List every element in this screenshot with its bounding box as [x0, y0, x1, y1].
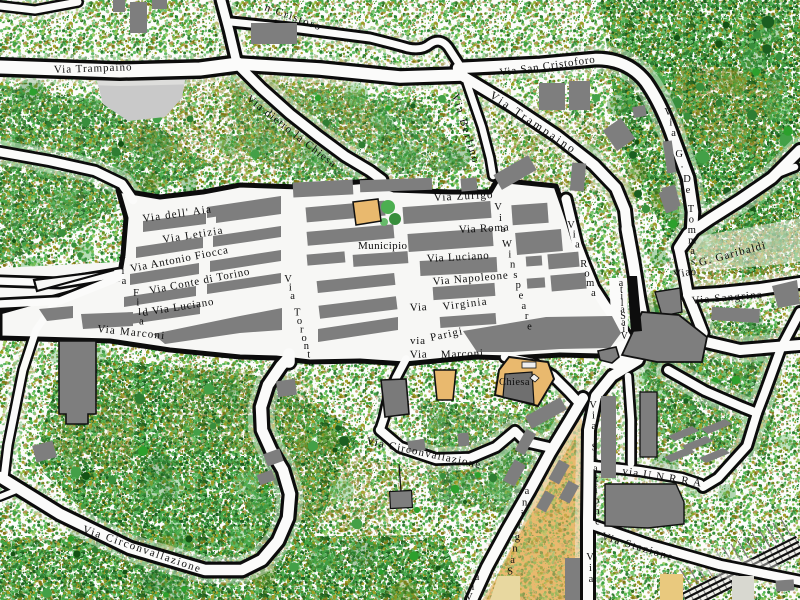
- svg-text:e: e: [686, 185, 691, 196]
- svg-text:a: a: [501, 224, 506, 235]
- svg-text:o: o: [308, 358, 313, 369]
- svg-text:i: i: [669, 118, 672, 129]
- svg-text:s: s: [691, 257, 695, 268]
- svg-text:i: i: [521, 509, 524, 520]
- svg-text:V: V: [465, 592, 473, 600]
- svg-text:a: a: [591, 421, 596, 432]
- svg-text:t: t: [594, 453, 597, 464]
- svg-text:n: n: [522, 498, 528, 509]
- svg-text:a: a: [290, 291, 295, 302]
- svg-text:a: a: [589, 574, 594, 585]
- svg-text:a: a: [510, 555, 515, 566]
- svg-text:r: r: [518, 521, 522, 532]
- svg-text:S: S: [592, 442, 598, 453]
- svg-text:z: z: [593, 474, 598, 485]
- svg-text:Municipio: Municipio: [358, 240, 408, 252]
- svg-text:m: m: [688, 225, 696, 236]
- svg-text:via: via: [410, 335, 426, 347]
- svg-text:a: a: [593, 464, 598, 475]
- svg-text:a: a: [525, 486, 530, 497]
- svg-text:V: V: [586, 552, 594, 563]
- svg-text:Marconi: Marconi: [441, 348, 484, 361]
- svg-text:a: a: [575, 239, 580, 250]
- svg-text:o: o: [594, 495, 599, 506]
- svg-text:V: V: [664, 107, 672, 118]
- svg-text:g: g: [515, 532, 521, 543]
- svg-text:n: n: [512, 544, 518, 555]
- svg-text:Via: Via: [410, 348, 428, 361]
- svg-text:o: o: [689, 215, 694, 226]
- svg-text:a: a: [122, 276, 127, 287]
- svg-text:V: V: [494, 202, 502, 213]
- svg-text:e: e: [595, 517, 600, 528]
- svg-text:n: n: [594, 506, 600, 517]
- svg-text:i: i: [595, 485, 598, 496]
- svg-text:a: a: [591, 288, 596, 299]
- svg-text:i: i: [589, 563, 592, 574]
- svg-text:V: V: [589, 400, 597, 411]
- svg-text:S: S: [507, 567, 513, 578]
- svg-text:e: e: [527, 321, 532, 332]
- svg-text:T: T: [688, 204, 695, 215]
- svg-text:m: m: [688, 236, 696, 247]
- svg-text:V: V: [621, 331, 629, 342]
- svg-text:Chiesa: Chiesa: [499, 377, 530, 388]
- svg-text:a: a: [139, 317, 144, 328]
- svg-text:G: G: [675, 149, 683, 160]
- svg-text:a: a: [475, 572, 480, 583]
- svg-text:i: i: [499, 213, 502, 224]
- svg-text:D: D: [683, 174, 691, 185]
- svg-text:a: a: [671, 128, 676, 139]
- svg-text:i: i: [592, 411, 595, 422]
- svg-text:a: a: [690, 246, 695, 257]
- svg-text:Via: Via: [410, 301, 428, 314]
- svg-text:.: .: [681, 160, 684, 171]
